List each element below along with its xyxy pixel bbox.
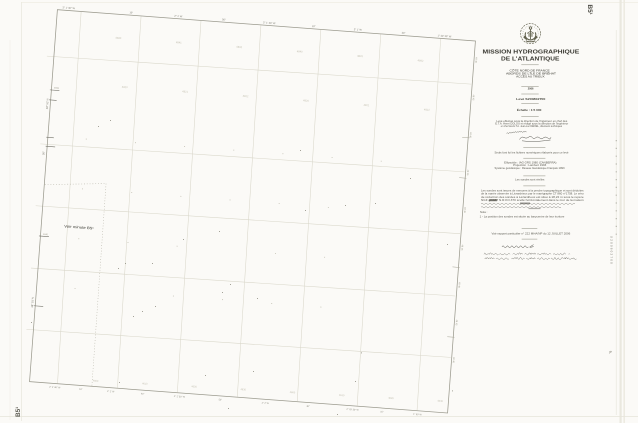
svg-text:10": 10" bbox=[129, 11, 133, 14]
svg-text:4630: 4630 bbox=[437, 400, 443, 403]
svg-text:1 - La position des sondes est: 1 - La position des sondes est située au… bbox=[480, 215, 565, 219]
svg-text:4610: 4610 bbox=[339, 394, 345, 397]
svg-text:40": 40" bbox=[141, 393, 145, 395]
svg-text:30": 30" bbox=[306, 406, 310, 408]
svg-text:10": 10" bbox=[79, 389, 83, 391]
svg-text:4821: 4821 bbox=[182, 89, 189, 93]
svg-text:4620: 4620 bbox=[191, 385, 197, 388]
svg-text:50": 50" bbox=[222, 18, 226, 21]
svg-text:4822: 4822 bbox=[424, 107, 431, 111]
svg-text:Système géodésique : Réseau Gé: Système géodésique : Réseau Géodésique F… bbox=[495, 166, 565, 170]
svg-text:Échelle : 1:5 000: Échelle : 1:5 000 bbox=[517, 107, 542, 112]
svg-text:DE L’ATLANTIQUE: DE L’ATLANTIQUE bbox=[501, 57, 560, 63]
svg-text:Nota :: Nota : bbox=[480, 210, 488, 214]
svg-text:10": 10" bbox=[312, 25, 316, 28]
svg-text:10": 10" bbox=[380, 411, 384, 413]
svg-text:B5¹: B5¹ bbox=[586, 5, 593, 15]
svg-text:Levé S200802700: Levé S200802700 bbox=[516, 97, 546, 101]
svg-text:4840: 4840 bbox=[115, 36, 122, 40]
svg-text:50": 50" bbox=[219, 399, 223, 401]
svg-text:4840: 4840 bbox=[297, 49, 304, 53]
svg-text:4842: 4842 bbox=[236, 45, 243, 49]
svg-text:4630: 4630 bbox=[240, 388, 246, 391]
svg-text:30": 30" bbox=[401, 32, 405, 35]
svg-text:4842: 4842 bbox=[417, 58, 424, 62]
svg-text:4820: 4820 bbox=[122, 85, 129, 89]
svg-text:2° 1' W: 2° 1' W bbox=[354, 28, 363, 32]
svg-text:4841: 4841 bbox=[176, 40, 183, 44]
svg-text:4600: 4600 bbox=[290, 391, 296, 394]
svg-text:2006: 2006 bbox=[528, 87, 534, 91]
svg-text:48° 52' N: 48° 52' N bbox=[45, 98, 50, 109]
svg-text:4841: 4841 bbox=[357, 54, 364, 58]
svg-text:4600: 4600 bbox=[93, 379, 99, 382]
svg-text:Seuls font foi les fichiers nu: Seuls font foi les fichiers numériques é… bbox=[495, 151, 569, 155]
svg-text:30": 30" bbox=[41, 151, 45, 155]
svg-text:4620: 4620 bbox=[388, 397, 394, 400]
svg-text:4610: 4610 bbox=[142, 382, 148, 385]
svg-text:2° 1' W: 2° 1' W bbox=[174, 15, 183, 19]
svg-text:MISSION HYDROGRAPHIQUE: MISSION HYDROGRAPHIQUE bbox=[483, 50, 580, 56]
svg-text:S200802700: S200802700 bbox=[610, 236, 614, 265]
svg-text:B5¹: B5¹ bbox=[15, 407, 22, 417]
svg-text:48° 51' N: 48° 51' N bbox=[30, 297, 35, 308]
svg-text:Les sondes sont réelles: Les sondes sont réelles bbox=[515, 178, 545, 182]
svg-text:4822: 4822 bbox=[243, 94, 250, 98]
svg-text:4820: 4820 bbox=[303, 98, 310, 102]
svg-text:4821: 4821 bbox=[363, 103, 370, 107]
svg-text:Voir rapport particulier n° 22: Voir rapport particulier n° 222 MHA/NP d… bbox=[492, 232, 571, 236]
